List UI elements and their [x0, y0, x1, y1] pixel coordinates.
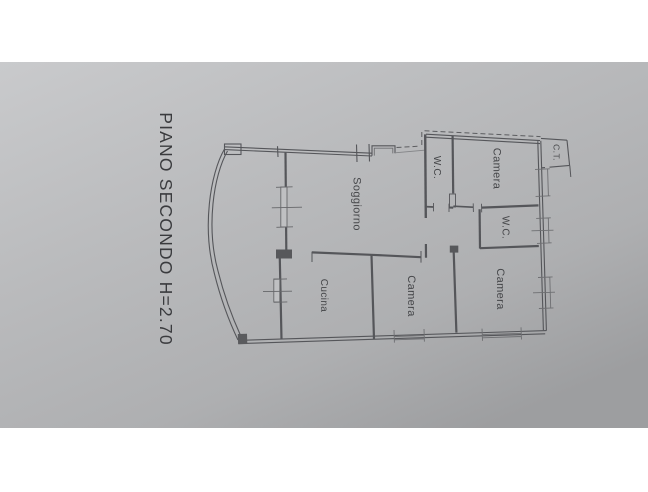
- top-wall-window-tick: [278, 146, 279, 157]
- window-cucina: [274, 279, 280, 302]
- screenshot: Soggiorno Cucina Camera Camera Camera W.…: [0, 0, 648, 492]
- room-label-soggiorno: Soggiorno: [351, 177, 363, 231]
- window-soggiorno: [281, 187, 287, 227]
- wall-soggiorno-right: [425, 134, 426, 218]
- wall-block: [450, 246, 459, 253]
- plan-title: PIANO SECONDO H=2.70: [156, 112, 176, 346]
- floor-plan-photo: Soggiorno Cucina Camera Camera Camera W.…: [0, 0, 648, 492]
- wall-wc1-right: [453, 136, 454, 193]
- bottom-left-pier: [238, 334, 248, 345]
- wall-junction-block: [276, 250, 292, 259]
- room-label-wc-middle: W.C.: [500, 216, 511, 239]
- room-label-wc-top: W.C.: [431, 156, 442, 179]
- room-label-camera-bottom-right: Camera: [494, 268, 506, 310]
- room-label-cucina: Cucina: [318, 279, 329, 313]
- room-label-camera-top-right: Camera: [491, 148, 503, 190]
- wall-camera-tr-bottom: [453, 206, 473, 207]
- photo-paper-background: [0, 62, 648, 428]
- room-label-ct: C.T.: [552, 144, 562, 161]
- room-label-camera-bottom-middle: Camera: [405, 275, 417, 317]
- top-window-tick-a: [357, 145, 358, 163]
- top-window-tick-b: [369, 144, 370, 162]
